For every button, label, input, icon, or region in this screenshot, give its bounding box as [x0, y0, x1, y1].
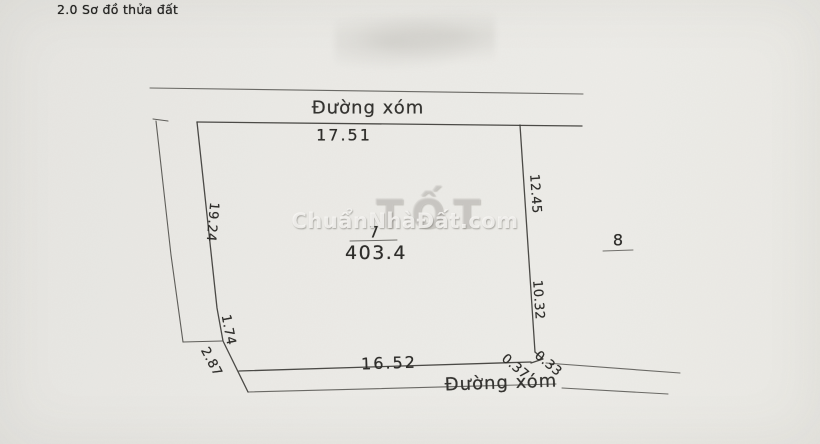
- dimension-right-10-32: 10.32: [529, 280, 547, 321]
- plot-top-edge: [197, 122, 582, 126]
- scanned-land-plot-page: 2.0 Sơ đồ thửa đất Đường xóm Đường xóm 1…: [0, 0, 820, 444]
- parcel-number: 7: [369, 223, 379, 242]
- road-label-bottom: Đường xóm: [444, 371, 557, 396]
- outer-boundary-stub: [153, 119, 168, 121]
- dimension-right-12-45: 12.45: [526, 174, 544, 215]
- parcel-8-underline: [603, 250, 633, 251]
- dimension-bottom-16-52: 16.52: [361, 353, 417, 374]
- road-right-upper-line: [546, 363, 680, 373]
- road-top-line: [150, 88, 583, 94]
- parcel-area: 403.4: [345, 242, 407, 264]
- plot-diagram-lines: [0, 0, 820, 444]
- road-bottom-line-right: [562, 388, 668, 394]
- road-label-top: Đường xóm: [312, 98, 425, 119]
- adjacent-parcel-number: 8: [613, 231, 623, 250]
- outer-boundary-jog: [183, 341, 222, 342]
- outer-boundary-left: [156, 121, 183, 342]
- dimension-top-17-51: 17.51: [316, 126, 372, 145]
